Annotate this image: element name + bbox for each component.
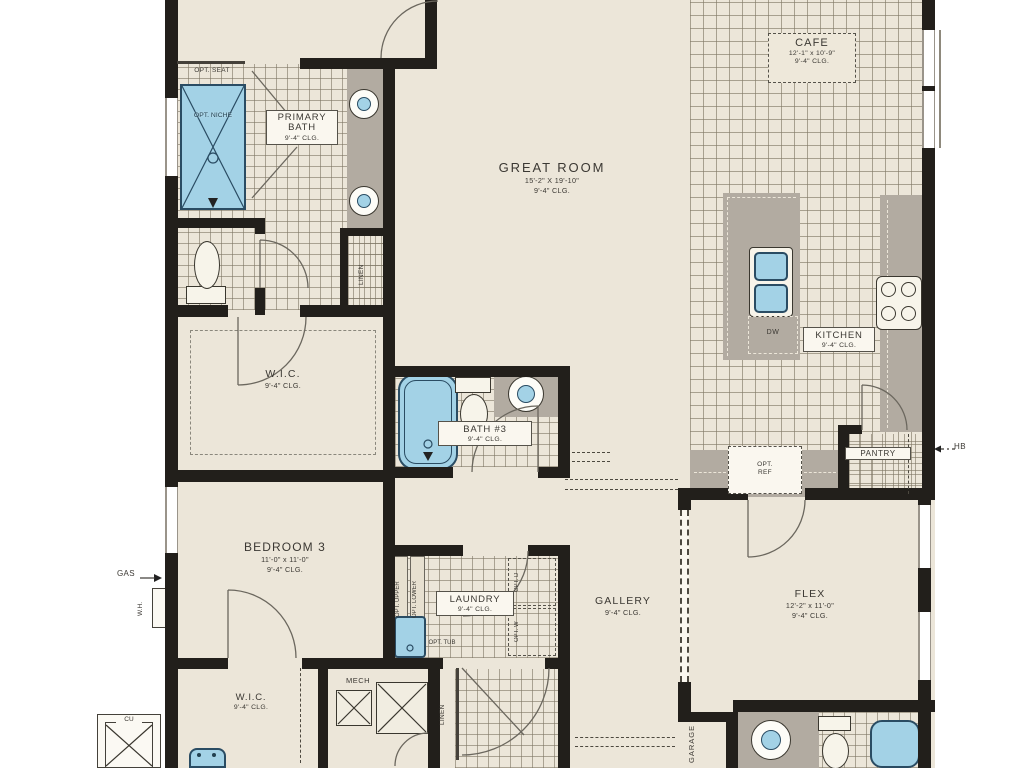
plan-graphic — [252, 147, 297, 198]
plan-graphic: 9'-4" CLG. — [765, 611, 855, 620]
label-opt-dryer: OPT. D — [514, 562, 520, 602]
plan-graphic: LAUNDRY — [440, 594, 510, 605]
plan-graphic: 9'-4" CLG. — [442, 436, 528, 443]
plan-graphic — [182, 86, 244, 208]
room-label-wic2: W.I.C. 9'-4" CLG. — [211, 692, 291, 711]
plan-graphic — [748, 500, 805, 557]
plan-linework — [0, 0, 1024, 768]
plan-graphic: BATH #3 — [442, 424, 528, 435]
label-opt-upper: OPT. UPPER — [395, 560, 401, 638]
plan-graphic: GREAT ROOM — [492, 160, 612, 175]
room-label-bath3: BATH #3 9'-4" CLG. — [438, 421, 532, 446]
label-opt-lower: OPT. LOWER — [412, 560, 418, 638]
plan-graphic: 15'-2" X 19'-10" — [492, 176, 612, 185]
plan-graphic — [462, 668, 549, 755]
plan-graphic: MECH — [332, 676, 384, 685]
plan-graphic: KITCHEN — [807, 330, 871, 341]
plan-graphic: 9'-4" CLG. — [769, 58, 855, 65]
label-condenser: CU — [116, 716, 142, 723]
plan-graphic — [106, 725, 152, 766]
plan-graphic: CAFE — [769, 37, 855, 49]
room-label-linen-hall: LINEN — [439, 680, 447, 750]
label-hose-bib: HB — [949, 442, 971, 451]
plan-graphic — [154, 198, 941, 582]
plan-graphic: FLEX — [765, 588, 855, 600]
plan-graphic: PRIMARY BATH — [270, 113, 334, 134]
plan-graphic — [154, 574, 162, 582]
label-opt-washer: OPT. W — [514, 612, 520, 652]
room-label-mech: MECH — [332, 676, 384, 685]
label-gas: GAS — [113, 569, 139, 578]
label-opt-niche: OPT. NICHE — [186, 112, 240, 121]
plan-graphic — [934, 446, 941, 453]
plan-graphic: W.I.C. — [211, 692, 291, 703]
label-opt-ref: OPT. REF — [728, 446, 802, 494]
room-label-laundry: LAUNDRY 9'-4" CLG. — [436, 591, 514, 616]
plan-graphic — [378, 684, 426, 732]
plan-graphic — [862, 385, 907, 430]
floor-plan: GREAT ROOM 15'-2" X 19'-10" 9'-4" CLG. C… — [0, 0, 1024, 768]
plan-graphic — [381, 1, 438, 58]
plan-graphic: 9'-4" CLG. — [270, 135, 334, 142]
plan-graphic: 9'-4" CLG. — [440, 606, 510, 613]
plan-graphic: GALLERY — [578, 595, 668, 607]
plan-graphic: 9'-4" CLG. — [225, 565, 345, 574]
room-label-linen-primary: LINEN — [358, 242, 366, 308]
room-label-great-room: GREAT ROOM 15'-2" X 19'-10" 9'-4" CLG. — [492, 160, 612, 195]
room-label-kitchen: KITCHEN 9'-4" CLG. — [803, 327, 875, 352]
plan-graphic — [260, 240, 308, 288]
room-label-bedroom3: BEDROOM 3 11'-0" x 11'-0" 9'-4" CLG. — [225, 540, 345, 574]
plan-graphic: W.I.C. — [233, 368, 333, 380]
plan-graphic — [424, 440, 432, 448]
plan-graphic: 9'-4" CLG. — [578, 608, 668, 617]
plan-graphic: 11'-0" x 11'-0" — [225, 555, 345, 564]
label-dishwasher: DW — [748, 329, 798, 336]
plan-graphic — [208, 198, 218, 208]
label-opt-seat: OPT. SEAT — [179, 67, 245, 75]
plan-graphic: OPT. REF — [750, 461, 780, 477]
plan-graphic: BEDROOM 3 — [225, 540, 345, 554]
room-label-pantry: PANTRY — [845, 447, 911, 460]
plan-graphic — [407, 645, 413, 651]
plan-graphic: 9'-4" CLG. — [211, 704, 291, 711]
plan-graphic — [423, 452, 433, 461]
room-label-cafe: CAFE 12'-1" x 10'-9" 9'-4" CLG. — [768, 33, 856, 83]
room-label-gallery: GALLERY 9'-4" CLG. — [578, 595, 668, 617]
plan-graphic: 9'-4" CLG. — [233, 381, 333, 390]
plan-graphic — [338, 692, 370, 724]
label-opt-tub: OPT. TUB — [428, 640, 456, 648]
plan-graphic: 12'-1" x 10'-9" — [769, 50, 855, 57]
plan-graphic: 9'-4" CLG. — [492, 186, 612, 195]
room-label-garage: GARAGE — [687, 720, 696, 768]
room-label-flex: FLEX 12'-2" x 11'-0" 9'-4" CLG. — [765, 588, 855, 620]
plan-graphic — [395, 733, 428, 766]
plan-graphic: 9'-4" CLG. — [807, 342, 871, 349]
room-label-primary-bath: PRIMARY BATH 9'-4" CLG. — [266, 110, 338, 145]
label-water-heater: W.H. — [137, 590, 144, 628]
plan-graphic: PANTRY — [848, 449, 908, 458]
room-label-wic-primary: W.I.C. 9'-4" CLG. — [233, 368, 333, 390]
plan-graphic: 12'-2" x 11'-0" — [765, 601, 855, 610]
plan-graphic — [208, 153, 218, 163]
plan-graphic — [228, 590, 296, 658]
